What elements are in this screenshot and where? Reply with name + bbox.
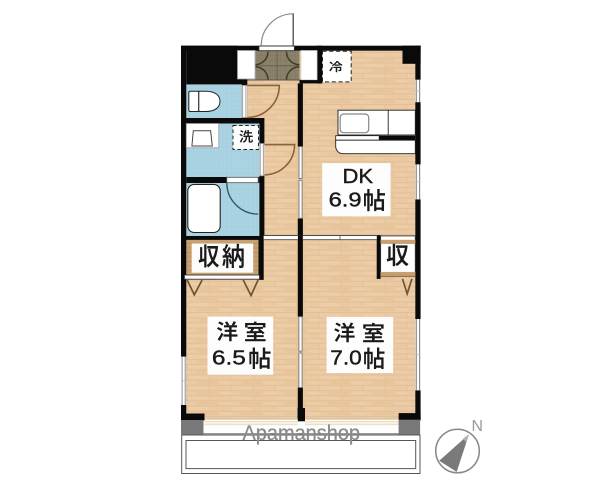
svg-text:Apamanshop: Apamanshop bbox=[243, 422, 361, 445]
svg-text:DK: DK bbox=[343, 165, 374, 188]
svg-text:7.0: 7.0 bbox=[330, 346, 362, 369]
svg-text:6.5: 6.5 bbox=[212, 347, 246, 370]
svg-text:6.9: 6.9 bbox=[329, 188, 362, 211]
svg-text:N: N bbox=[472, 418, 483, 435]
